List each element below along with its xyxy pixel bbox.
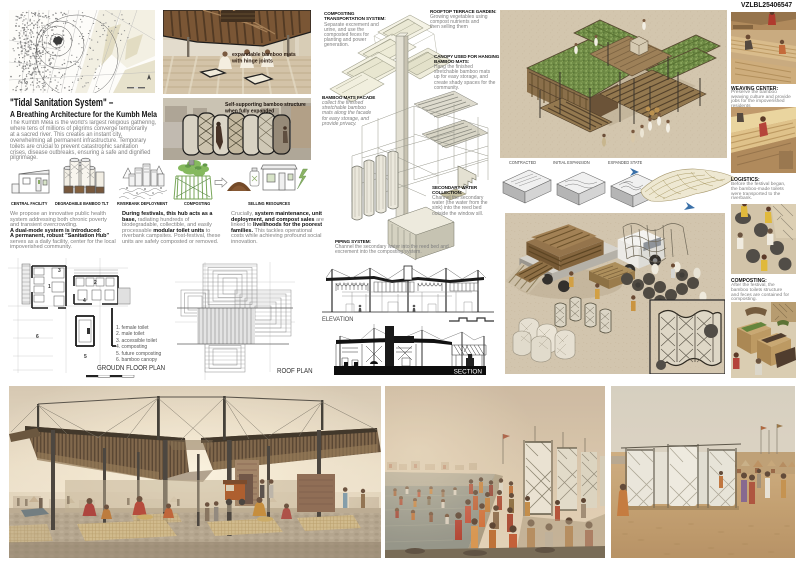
svg-text:1: 1: [48, 284, 51, 290]
svg-text:with hinge joints: with hinge joints: [231, 59, 273, 65]
svg-text:Self-supporting bamboo structu: Self-supporting bamboo structure: [225, 102, 306, 108]
svg-text:expandable bamboo mats: expandable bamboo mats: [232, 52, 296, 58]
svg-text:2: 2: [94, 280, 97, 286]
svg-text:4: 4: [83, 298, 86, 304]
svg-text:when fully expanded: when fully expanded: [224, 109, 274, 115]
svg-text:6: 6: [36, 334, 39, 340]
svg-text:SECTION: SECTION: [454, 369, 483, 376]
svg-text:5: 5: [84, 354, 87, 360]
svg-text:3: 3: [58, 268, 61, 274]
